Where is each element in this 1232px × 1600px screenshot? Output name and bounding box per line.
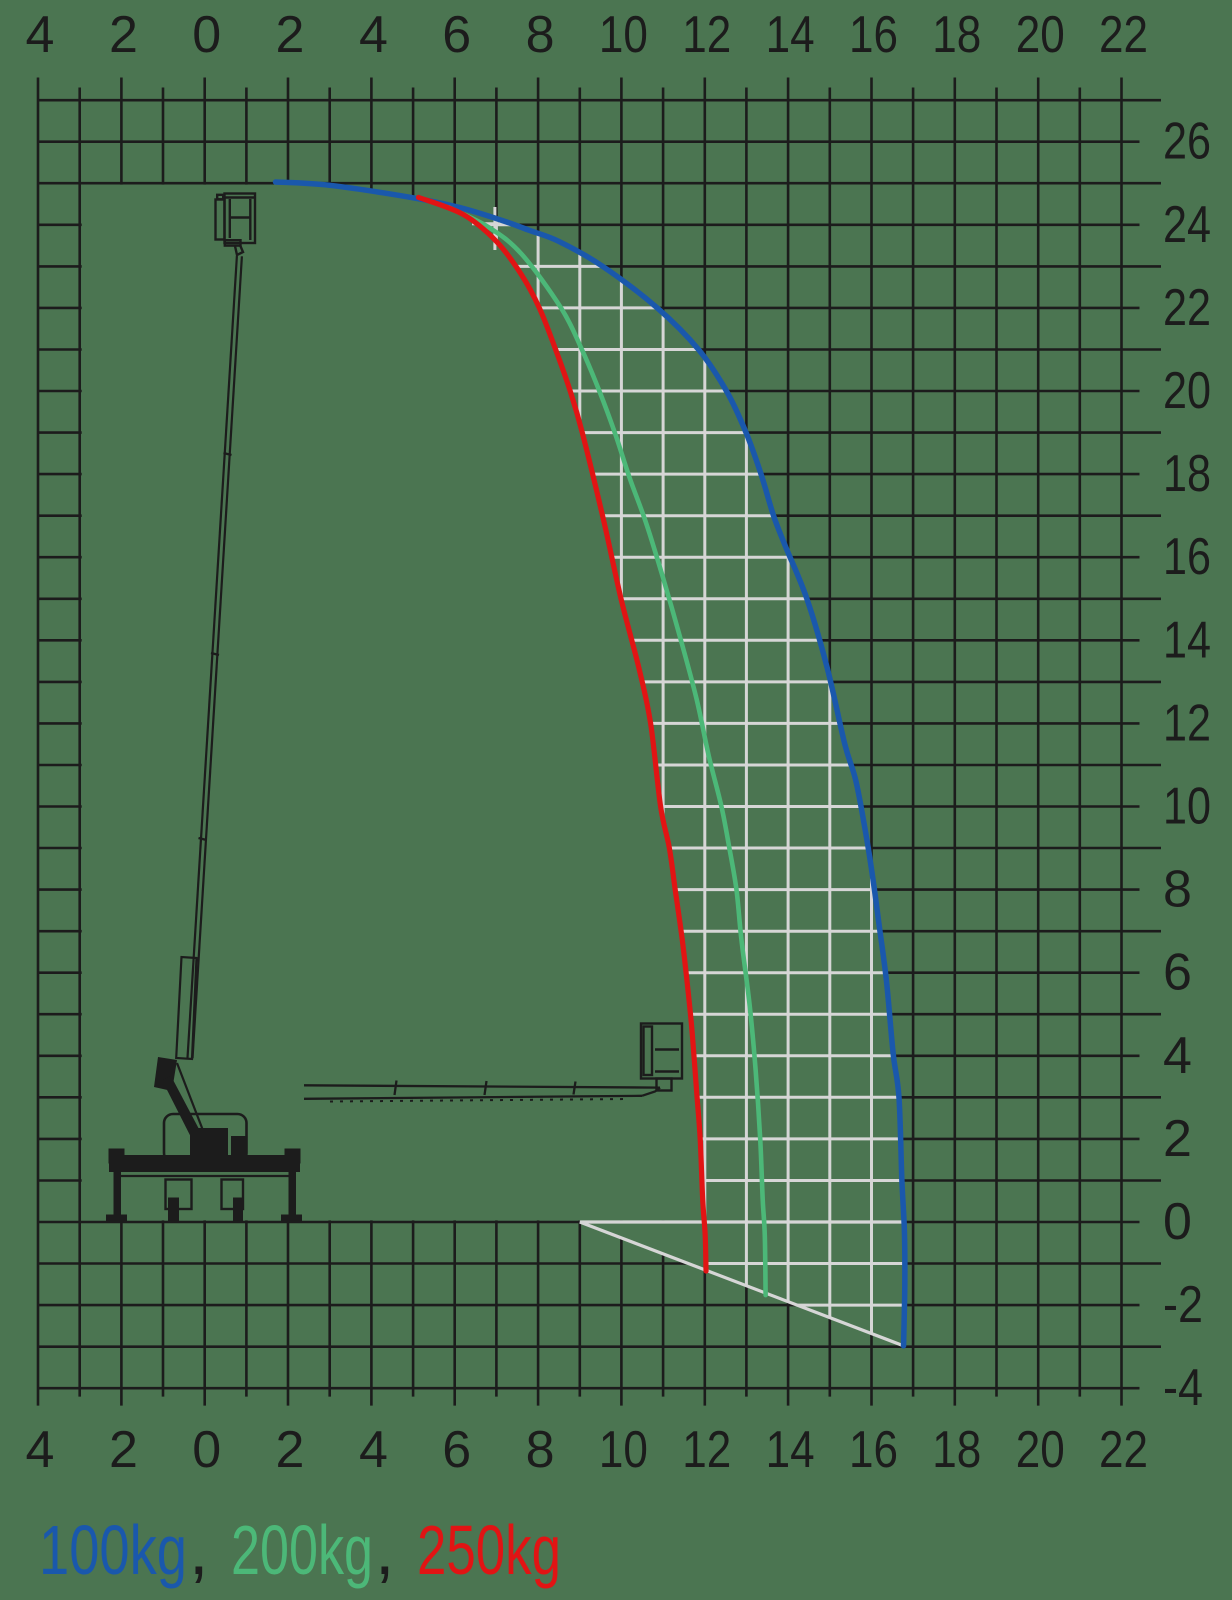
svg-text:20: 20 xyxy=(1016,6,1065,64)
svg-text:250kg: 250kg xyxy=(417,1511,561,1589)
svg-text:12: 12 xyxy=(1163,694,1211,752)
svg-text:12: 12 xyxy=(682,6,731,64)
svg-text:18: 18 xyxy=(932,1421,981,1479)
svg-text:4: 4 xyxy=(359,6,388,64)
svg-text:4: 4 xyxy=(1163,1027,1192,1085)
svg-text:2: 2 xyxy=(109,6,138,64)
svg-text:12: 12 xyxy=(682,1421,731,1479)
svg-text:,: , xyxy=(375,1511,394,1589)
svg-text:14: 14 xyxy=(766,6,815,64)
svg-text:26: 26 xyxy=(1163,113,1211,171)
svg-text:22: 22 xyxy=(1099,1421,1148,1479)
svg-text:16: 16 xyxy=(849,1421,898,1479)
svg-text:6: 6 xyxy=(442,6,471,64)
svg-text:14: 14 xyxy=(766,1421,815,1479)
svg-text:-2: -2 xyxy=(1163,1276,1203,1334)
svg-text:8: 8 xyxy=(526,1421,555,1479)
svg-text:10: 10 xyxy=(599,6,648,64)
svg-text:0: 0 xyxy=(1163,1193,1192,1251)
svg-text:6: 6 xyxy=(1163,944,1192,1002)
svg-text:-4: -4 xyxy=(1163,1359,1203,1417)
svg-text:10: 10 xyxy=(1163,778,1211,836)
svg-text:4: 4 xyxy=(359,1421,388,1479)
svg-text:14: 14 xyxy=(1163,611,1211,669)
svg-text:4: 4 xyxy=(26,6,55,64)
svg-text:22: 22 xyxy=(1099,6,1148,64)
svg-text:0: 0 xyxy=(192,6,221,64)
svg-text:,: , xyxy=(189,1511,208,1589)
svg-text:2: 2 xyxy=(276,1421,305,1479)
svg-text:8: 8 xyxy=(1163,861,1192,919)
svg-text:4: 4 xyxy=(26,1421,55,1479)
svg-text:100kg: 100kg xyxy=(39,1511,187,1589)
svg-text:20: 20 xyxy=(1016,1421,1065,1479)
svg-text:16: 16 xyxy=(1163,528,1211,586)
svg-text:18: 18 xyxy=(1163,445,1211,503)
svg-text:200kg: 200kg xyxy=(231,1511,373,1589)
svg-text:20: 20 xyxy=(1163,362,1211,420)
svg-text:10: 10 xyxy=(599,1421,648,1479)
svg-text:16: 16 xyxy=(849,6,898,64)
svg-text:2: 2 xyxy=(109,1421,138,1479)
svg-text:8: 8 xyxy=(526,6,555,64)
svg-text:24: 24 xyxy=(1163,196,1211,254)
svg-text:0: 0 xyxy=(192,1421,221,1479)
svg-text:6: 6 xyxy=(442,1421,471,1479)
svg-text:18: 18 xyxy=(932,6,981,64)
svg-text:2: 2 xyxy=(276,6,305,64)
svg-text:22: 22 xyxy=(1163,279,1211,337)
svg-text:2: 2 xyxy=(1163,1110,1192,1168)
